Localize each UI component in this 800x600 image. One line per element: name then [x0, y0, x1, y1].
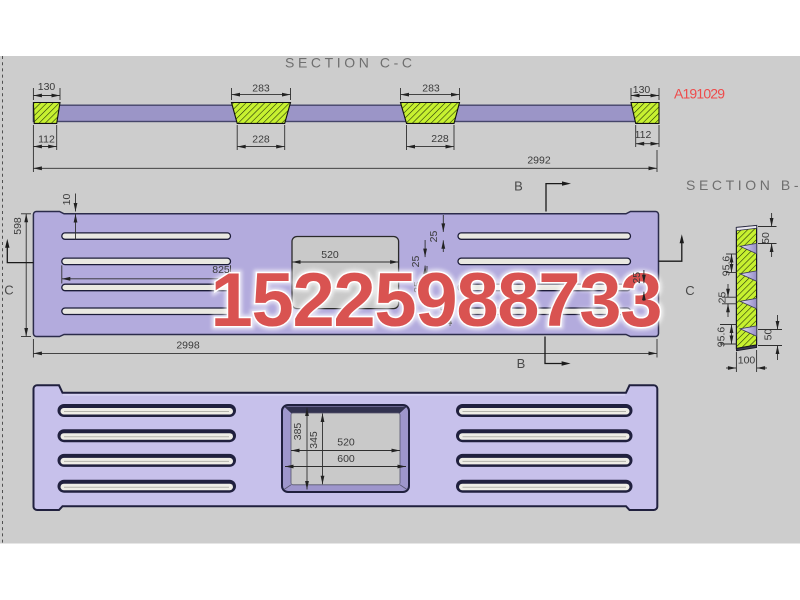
svg-text:112: 112 [635, 129, 652, 141]
svg-text:95.6: 95.6 [721, 256, 733, 277]
svg-text:598: 598 [12, 217, 24, 235]
svg-text:15225988733: 15225988733 [211, 258, 663, 343]
svg-text:520: 520 [337, 437, 355, 449]
svg-text:130: 130 [633, 84, 651, 96]
svg-text:228: 228 [431, 133, 449, 145]
svg-text:345: 345 [308, 431, 320, 449]
svg-text:SECTION C-C: SECTION C-C [285, 55, 416, 71]
svg-text:C: C [4, 283, 13, 298]
svg-text:385: 385 [292, 423, 304, 441]
svg-text:600: 600 [337, 453, 355, 465]
svg-text:A191029: A191029 [674, 86, 725, 102]
svg-text:112: 112 [38, 134, 55, 146]
svg-text:50: 50 [760, 232, 772, 244]
svg-text:130: 130 [38, 81, 56, 93]
svg-text:SECTION B-: SECTION B- [686, 177, 800, 193]
svg-text:25: 25 [428, 231, 440, 243]
svg-text:2998: 2998 [176, 340, 200, 352]
svg-text:C: C [685, 283, 694, 298]
svg-text:2992: 2992 [527, 155, 551, 167]
svg-text:B: B [517, 356, 526, 371]
svg-text:50: 50 [763, 329, 775, 341]
svg-text:100: 100 [738, 355, 756, 367]
svg-text:825: 825 [212, 264, 230, 276]
svg-text:B: B [514, 179, 523, 194]
svg-text:283: 283 [252, 83, 270, 95]
svg-text:228: 228 [252, 134, 270, 146]
svg-text:283: 283 [422, 83, 440, 95]
svg-text:10: 10 [61, 194, 73, 206]
svg-text:25: 25 [631, 272, 643, 284]
